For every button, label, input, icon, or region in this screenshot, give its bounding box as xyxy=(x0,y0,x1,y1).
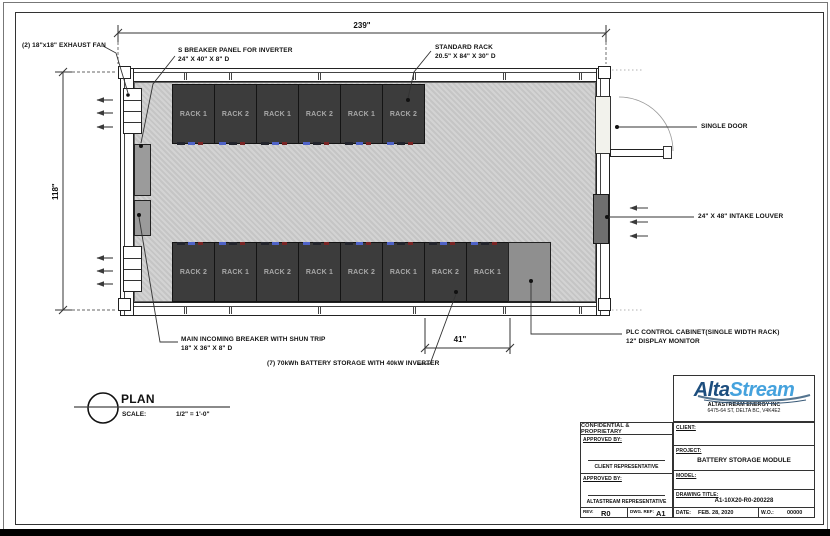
view-title: PLAN xyxy=(121,392,155,406)
wall-top xyxy=(120,68,610,82)
rack-connectors xyxy=(303,241,336,245)
rev-cell: REV: R0 xyxy=(580,507,628,518)
intake-louver xyxy=(593,194,609,244)
logo-box: AltaStream ALTASTREAM ENERGY INC 6475-64… xyxy=(673,375,815,422)
rack-label: RACK 1 xyxy=(180,111,207,118)
rack-label: RACK 1 xyxy=(264,111,291,118)
rack-label: RACK 2 xyxy=(348,269,375,276)
exhaust-fan xyxy=(123,88,142,134)
company-address: 6475-64 ST, DELTA BC, V4K4E2 xyxy=(674,408,814,414)
rack-connectors xyxy=(261,241,294,245)
rack: RACK 2 xyxy=(382,84,425,144)
signature-line xyxy=(588,495,664,496)
model-cell: MODEL: xyxy=(673,470,815,490)
rack-label: RACK 2 xyxy=(390,111,417,118)
main-incoming-breaker xyxy=(134,200,151,236)
rack: RACK 1 xyxy=(382,242,425,302)
rack: RACK 1 xyxy=(256,84,299,144)
rack: RACK 2 xyxy=(298,84,341,144)
model-label: MODEL: xyxy=(674,471,814,479)
scale-value: 1/2" = 1'-0" xyxy=(176,411,210,418)
corner-post xyxy=(598,66,611,79)
signature-line xyxy=(588,460,664,461)
rack: RACK 1 xyxy=(466,242,509,302)
approval-alta-cell: APPROVED BY: ALTASTREAM REPRESENTATIVE xyxy=(580,473,673,508)
standard-rack-label-2: 20.5" X 84" X 30" D xyxy=(435,53,496,60)
wo-value: 00000 xyxy=(787,510,802,516)
rack-connectors xyxy=(471,241,504,245)
rack: RACK 2 xyxy=(256,242,299,302)
dim-height-label: 118" xyxy=(51,183,60,200)
rack-connectors xyxy=(387,241,420,245)
corner-post xyxy=(118,298,131,311)
altastream-representative-label: ALTASTREAM REPRESENTATIVE xyxy=(581,499,672,505)
rack-label: RACK 2 xyxy=(432,269,459,276)
approved-by-label: APPROVED BY: xyxy=(581,435,672,443)
client-cell: CLIENT: xyxy=(673,422,815,446)
rack-label: RACK 2 xyxy=(180,269,207,276)
project-cell: PROJECT: BATTERY STORAGE MODULE xyxy=(673,445,815,471)
drawing-sheet: RACK 1 RACK 2 RACK 1 RACK 2 RACK 1 RACK … xyxy=(0,0,830,536)
rack-label: RACK 1 xyxy=(348,111,375,118)
plc-control-cabinet xyxy=(508,242,551,302)
rack-connectors xyxy=(219,241,252,245)
date-value: FEB. 28, 2020 xyxy=(698,510,733,516)
rack-label: RACK 1 xyxy=(390,269,417,276)
project-value: BATTERY STORAGE MODULE xyxy=(674,457,814,464)
approval-client-cell: APPROVED BY: CLIENT REPRESENTATIVE xyxy=(580,434,673,474)
rack-connectors xyxy=(177,241,210,245)
rack: RACK 2 xyxy=(172,242,215,302)
rack-connectors xyxy=(387,141,420,145)
dim-width-label: 239" xyxy=(340,21,384,30)
rack-connectors xyxy=(345,241,378,245)
drawing-title-cell: DRAWING TITLE: A1-10X20-R0-200228 xyxy=(673,489,815,508)
rack-connectors xyxy=(429,241,462,245)
drawing-title-value: A1-10X20-R0-200228 xyxy=(674,498,814,504)
rack-connectors xyxy=(303,141,336,145)
dwg-ref-value: A1 xyxy=(656,509,666,518)
door-opening xyxy=(595,96,611,154)
dwg-ref-label: DWG. REF: xyxy=(630,509,654,514)
intake-louver-label: 24" X 48" INTAKE LOUVER xyxy=(698,213,783,220)
rack: RACK 1 xyxy=(214,242,257,302)
rack-connectors xyxy=(177,141,210,145)
rack-label: RACK 2 xyxy=(264,269,291,276)
client-label: CLIENT: xyxy=(674,423,814,431)
corner-post xyxy=(598,298,611,311)
rack-label: RACK 1 xyxy=(306,269,333,276)
rack-connectors xyxy=(261,141,294,145)
logo-swoosh xyxy=(694,394,812,404)
wall-bottom xyxy=(120,302,610,316)
rack-label: RACK 1 xyxy=(474,269,501,276)
breaker-panel-label-1: S BREAKER PANEL FOR INVERTER xyxy=(178,47,293,54)
wo-label: W.O.: xyxy=(761,510,774,516)
door-handle xyxy=(663,146,672,159)
date-label: DATE: xyxy=(676,510,691,516)
plc-cabinet-label-1: PLC CONTROL CABINET(SINGLE WIDTH RACK) xyxy=(626,329,780,336)
rev-value: R0 xyxy=(601,509,611,518)
client-representative-label: CLIENT REPRESENTATIVE xyxy=(581,464,672,470)
dim-rack-pair-label: 41" xyxy=(445,335,475,344)
rack: RACK 1 xyxy=(298,242,341,302)
plc-cabinet-label-2: 12" DISPLAY MONITOR xyxy=(626,338,700,345)
altastream-logo: AltaStream ALTASTREAM ENERGY INC 6475-64… xyxy=(674,379,814,414)
drawing-title-label: DRAWING TITLE: xyxy=(674,490,814,498)
bottom-edge-strip xyxy=(0,529,830,536)
rack: RACK 1 xyxy=(172,84,215,144)
battery-storage-label: (7) 70kWh BATTERY STORAGE WITH 40kW INVE… xyxy=(267,360,439,367)
rack-connectors xyxy=(345,141,378,145)
main-breaker-label-2: 18" X 36" X 8" D xyxy=(181,345,232,352)
corner-post xyxy=(118,66,131,79)
rack-label: RACK 1 xyxy=(222,269,249,276)
exhaust-fan xyxy=(123,246,142,292)
rack: RACK 2 xyxy=(340,242,383,302)
wo-cell: W.O.: 00000 xyxy=(758,507,815,518)
rack-connectors xyxy=(219,141,252,145)
breaker-panel-label-2: 24" X 40" X 8" D xyxy=(178,56,229,63)
rack: RACK 2 xyxy=(424,242,467,302)
dwg-ref-cell: DWG. REF: A1 xyxy=(627,507,673,518)
breaker-panel-inverter xyxy=(134,144,151,196)
main-breaker-label-1: MAIN INCOMING BREAKER WITH SHUN TRIP xyxy=(181,336,325,343)
date-cell: DATE: FEB. 28, 2020 xyxy=(673,507,759,518)
rev-label: REV: xyxy=(583,509,594,514)
rack-label: RACK 2 xyxy=(306,111,333,118)
rack: RACK 1 xyxy=(340,84,383,144)
single-door-label: SINGLE DOOR xyxy=(701,123,748,130)
exhaust-fan-label: (2) 18"x18" EXHAUST FAN xyxy=(22,42,106,49)
project-label: PROJECT: xyxy=(674,446,814,454)
scale-label: SCALE: xyxy=(122,411,146,418)
rack-label: RACK 2 xyxy=(222,111,249,118)
rack: RACK 2 xyxy=(214,84,257,144)
standard-rack-label-1: STANDARD RACK xyxy=(435,44,493,51)
approved-by-label: APPROVED BY: xyxy=(581,474,672,482)
